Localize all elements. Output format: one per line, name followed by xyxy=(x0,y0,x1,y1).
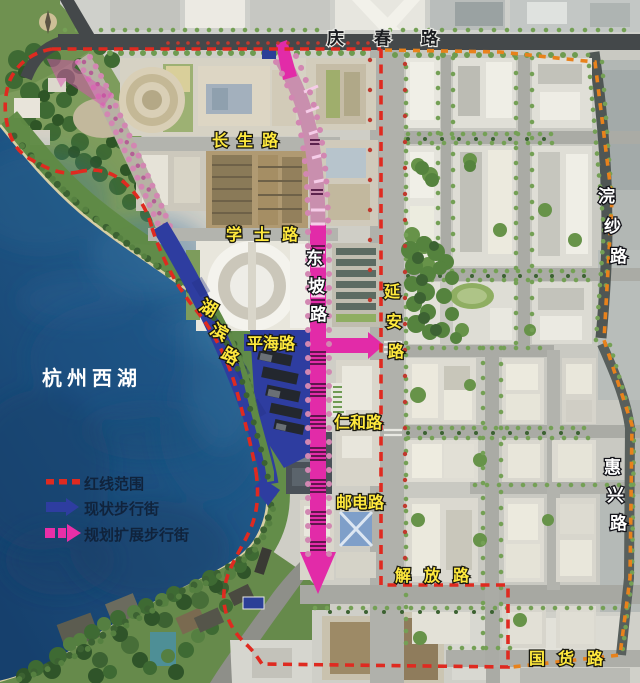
svg-text:纱: 纱 xyxy=(604,217,621,236)
svg-text:兴: 兴 xyxy=(607,486,624,505)
svg-text:路: 路 xyxy=(453,566,470,585)
svg-text:解: 解 xyxy=(395,566,411,585)
svg-text:路: 路 xyxy=(610,513,628,533)
svg-text:路: 路 xyxy=(310,304,328,324)
svg-text:浣: 浣 xyxy=(598,186,615,206)
svg-text:东: 东 xyxy=(306,248,323,268)
svg-text:士: 士 xyxy=(254,225,270,244)
svg-text:电: 电 xyxy=(352,493,368,512)
svg-text:海: 海 xyxy=(263,334,279,353)
svg-text:长: 长 xyxy=(212,131,229,150)
svg-text:放: 放 xyxy=(423,566,441,585)
svg-text:路: 路 xyxy=(421,28,439,48)
svg-text:货: 货 xyxy=(558,649,574,668)
svg-text:学: 学 xyxy=(226,225,242,244)
svg-text:邮: 邮 xyxy=(336,493,352,512)
svg-text:国: 国 xyxy=(529,650,545,668)
svg-text:路: 路 xyxy=(282,225,299,244)
svg-text:现状步行街: 现状步行街 xyxy=(84,500,159,518)
svg-text:和: 和 xyxy=(350,413,366,432)
svg-text:生: 生 xyxy=(237,131,253,150)
svg-text:惠: 惠 xyxy=(604,457,621,477)
svg-text:路: 路 xyxy=(388,342,405,361)
svg-text:仁: 仁 xyxy=(334,413,350,432)
svg-text:延: 延 xyxy=(383,282,401,301)
svg-text:路: 路 xyxy=(610,246,628,266)
svg-text:路: 路 xyxy=(368,493,385,512)
svg-text:春: 春 xyxy=(374,28,391,48)
svg-text:路: 路 xyxy=(279,334,296,353)
svg-text:路: 路 xyxy=(262,131,279,150)
svg-text:庆: 庆 xyxy=(327,28,344,48)
svg-text:路: 路 xyxy=(366,413,383,432)
svg-text:规划扩展步行街: 规划扩展步行街 xyxy=(84,526,189,544)
svg-text:杭州西湖: 杭州西湖 xyxy=(42,366,142,390)
svg-text:红线范围: 红线范围 xyxy=(84,475,144,493)
svg-text:平: 平 xyxy=(247,335,263,353)
svg-text:路: 路 xyxy=(587,649,604,668)
svg-text:安: 安 xyxy=(386,312,402,331)
svg-text:坡: 坡 xyxy=(308,276,325,296)
